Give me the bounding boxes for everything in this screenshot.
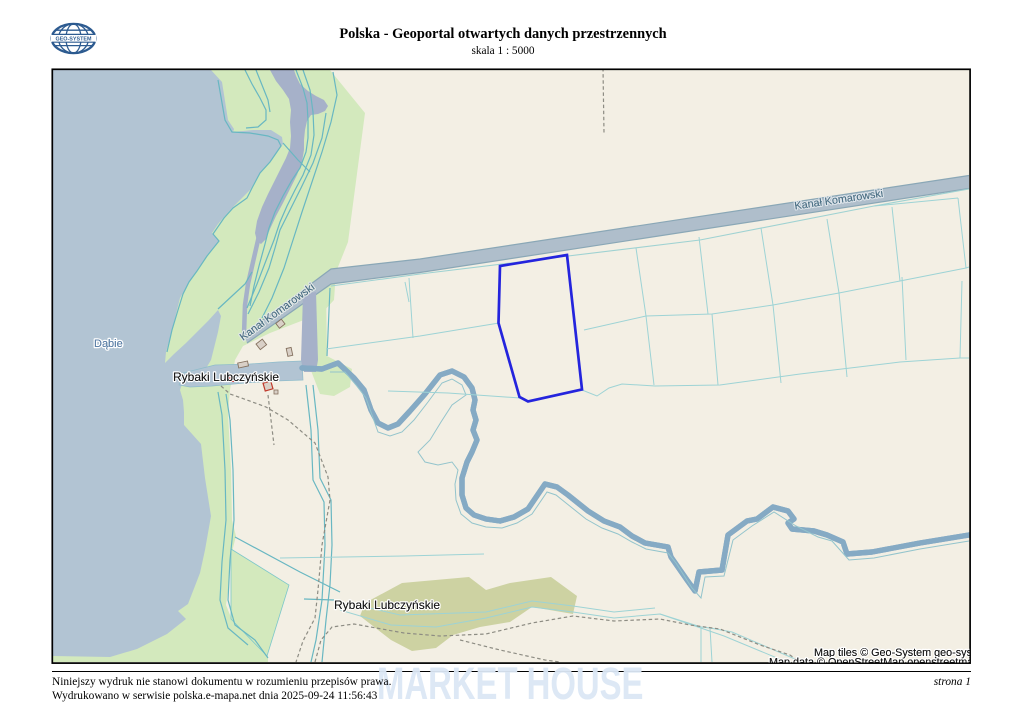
- svg-text:Rybaki Lubczyńskie: Rybaki Lubczyńskie: [173, 370, 279, 384]
- svg-text:Dąbie: Dąbie: [94, 338, 123, 350]
- svg-text:Map data © OpenStreetMap opens: Map data © OpenStreetMap openstreetmap.o…: [769, 657, 998, 669]
- svg-text:Rybaki Lubczyńskie: Rybaki Lubczyńskie: [334, 598, 440, 612]
